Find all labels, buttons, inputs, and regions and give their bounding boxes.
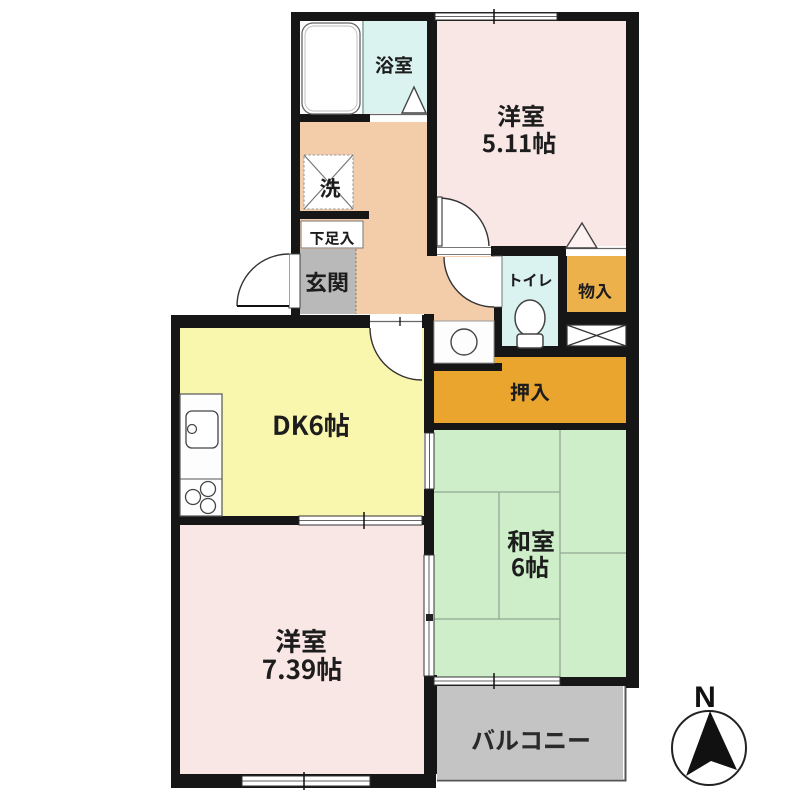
svg-text:N: N <box>694 681 716 714</box>
